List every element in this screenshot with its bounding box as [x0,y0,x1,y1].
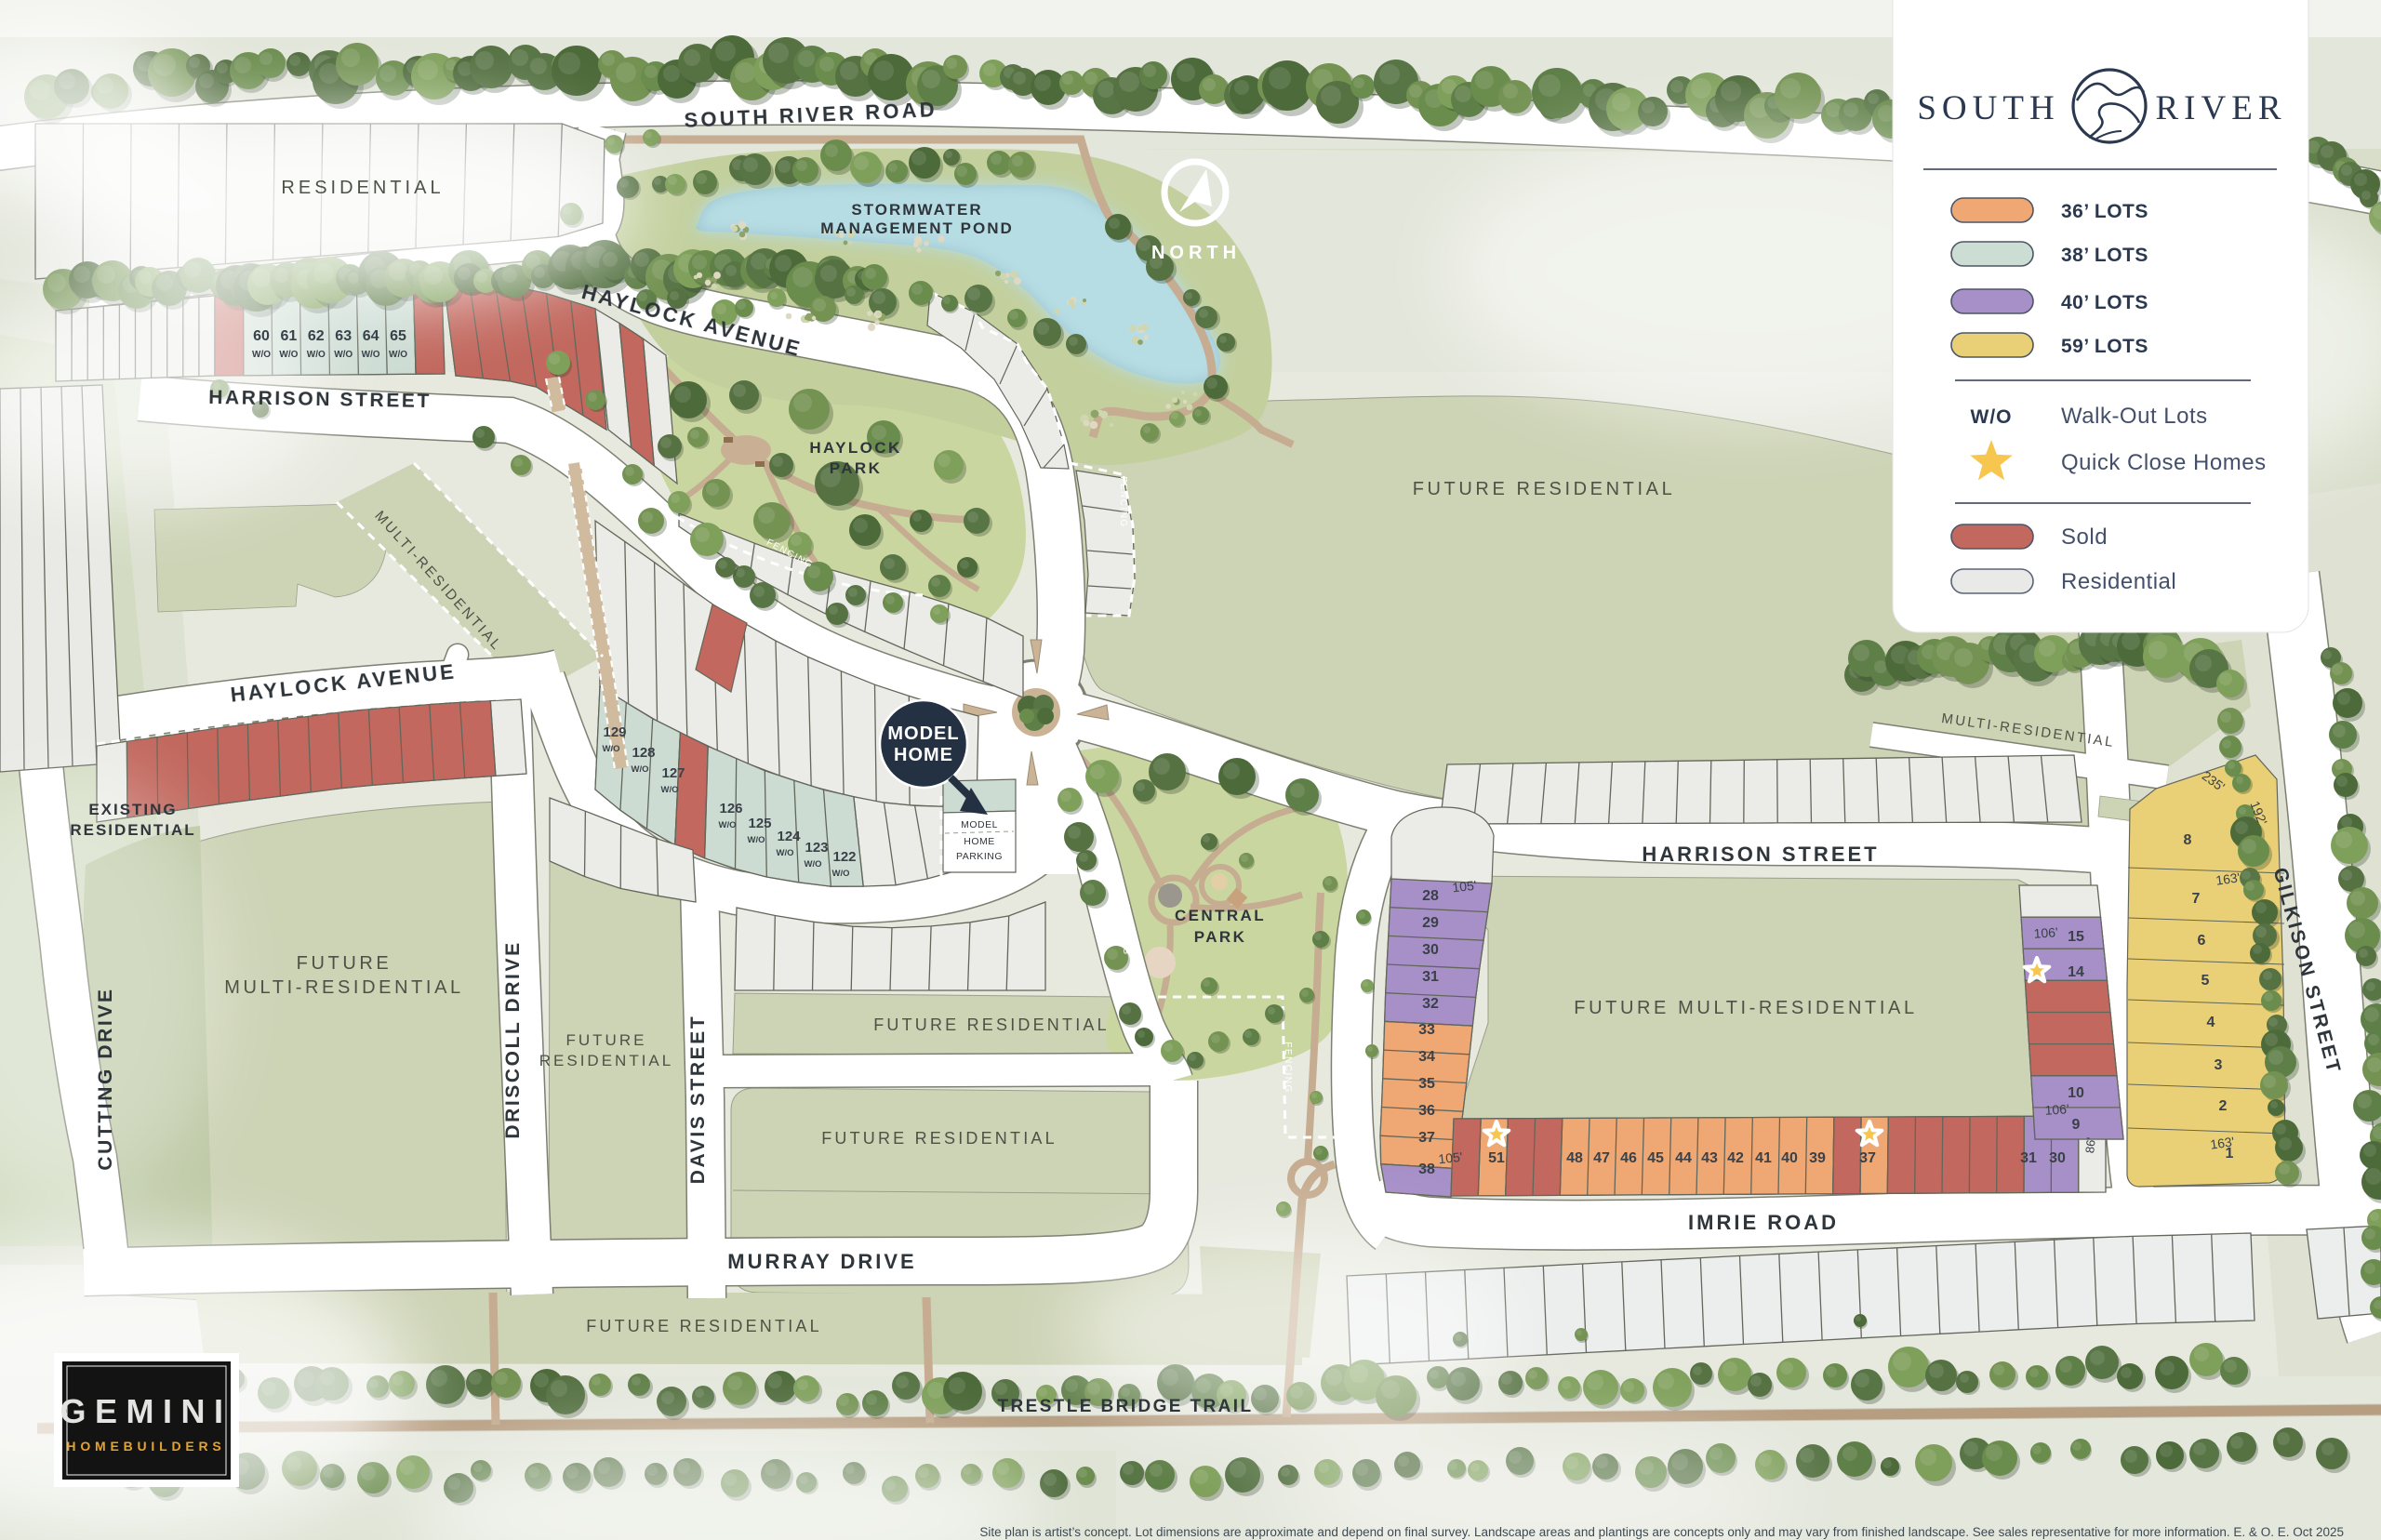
svg-text:MANAGEMENT POND: MANAGEMENT POND [820,219,1014,237]
svg-text:SOUTH: SOUTH [1917,89,2059,127]
svg-text:4: 4 [2207,1015,2215,1030]
svg-text:FUTURE RESIDENTIAL: FUTURE RESIDENTIAL [1413,479,1676,499]
svg-text:126: 126 [719,801,742,816]
svg-text:64: 64 [363,328,379,344]
svg-text:FUTURE MULTI-RESIDENTIAL: FUTURE MULTI-RESIDENTIAL [1574,998,1917,1018]
svg-text:W/O: W/O [719,820,737,830]
svg-text:STORMWATER: STORMWATER [851,201,982,219]
svg-text:CUTTING DRIVE: CUTTING DRIVE [95,987,116,1170]
svg-text:2: 2 [2219,1098,2228,1114]
svg-text:105': 105' [1438,1149,1464,1167]
svg-text:W/O: W/O [334,350,352,360]
svg-text:6: 6 [2198,933,2206,949]
svg-text:HOME: HOME [964,836,995,847]
svg-text:29: 29 [1422,915,1439,931]
svg-text:W/O: W/O [362,350,380,360]
svg-text:CENTRAL: CENTRAL [1175,907,1266,924]
svg-text:FENCING: FENCING [1118,476,1128,528]
svg-text:Residential: Residential [2061,569,2176,594]
svg-text:GEMINI: GEMINI [60,1392,232,1430]
svg-text:W/O: W/O [832,869,850,879]
svg-text:62: 62 [308,328,325,344]
svg-text:EXISTING: EXISTING [88,801,177,818]
svg-text:38’ LOTS: 38’ LOTS [2061,245,2148,266]
svg-text:FUTURE RESIDENTIAL: FUTURE RESIDENTIAL [873,1016,1110,1034]
svg-text:FENCING: FENCING [1121,904,1131,956]
svg-text:FUTURE: FUTURE [566,1031,647,1049]
svg-text:Walk-Out Lots: Walk-Out Lots [2061,404,2208,429]
svg-text:Quick Close Homes: Quick Close Homes [2061,450,2267,475]
svg-text:FUTURE RESIDENTIAL: FUTURE RESIDENTIAL [821,1129,1057,1148]
svg-text:40’ LOTS: 40’ LOTS [2061,292,2148,313]
svg-text:125: 125 [748,816,771,831]
svg-text:123: 123 [805,840,828,856]
svg-text:W/O: W/O [748,835,765,845]
svg-text:37: 37 [1859,1150,1876,1166]
svg-text:43: 43 [1701,1150,1718,1166]
svg-text:31: 31 [1422,969,1439,985]
svg-text:FUTURE: FUTURE [297,953,392,974]
svg-text:FENCING: FENCING [1283,1042,1293,1094]
svg-text:46: 46 [1620,1150,1637,1166]
svg-text:60: 60 [253,328,270,344]
svg-text:30: 30 [1422,942,1439,958]
svg-text:48: 48 [1566,1150,1583,1166]
svg-text:34: 34 [1418,1049,1435,1065]
svg-text:Site plan is artist’s concept.: Site plan is artist’s concept. Lot dimen… [979,1525,2344,1539]
svg-text:RESIDENTIAL: RESIDENTIAL [539,1052,673,1069]
svg-text:PARKING: PARKING [956,851,1003,862]
svg-text:MODEL: MODEL [961,819,998,830]
svg-text:HARRISON STREET: HARRISON STREET [1642,843,1879,866]
svg-text:PARK: PARK [1194,928,1247,946]
svg-text:IMRIE ROAD: IMRIE ROAD [1688,1211,1839,1234]
svg-text:W/O: W/O [389,350,407,360]
svg-text:8: 8 [2184,832,2192,848]
svg-text:30: 30 [2049,1150,2066,1166]
svg-text:NORTH: NORTH [1151,243,1241,263]
svg-text:40: 40 [1781,1150,1798,1166]
svg-text:39: 39 [1809,1150,1826,1166]
svg-text:W/O: W/O [252,350,271,360]
svg-text:129: 129 [603,724,626,740]
svg-text:W/O: W/O [603,744,620,754]
svg-text:RESIDENTIAL: RESIDENTIAL [70,821,195,839]
svg-text:MULTI-RESIDENTIAL: MULTI-RESIDENTIAL [224,977,464,998]
svg-text:36: 36 [1418,1103,1435,1119]
svg-text:FUTURE RESIDENTIAL: FUTURE RESIDENTIAL [586,1317,822,1335]
svg-text:7: 7 [2192,891,2201,907]
svg-text:37: 37 [1418,1130,1435,1146]
svg-text:3: 3 [2215,1057,2223,1073]
svg-text:PARK: PARK [830,459,883,477]
svg-text:65: 65 [390,328,406,344]
svg-text:14: 14 [2068,964,2084,980]
svg-text:31: 31 [2020,1150,2037,1166]
svg-text:42: 42 [1727,1150,1744,1166]
svg-text:DRISCOLL DRIVE: DRISCOLL DRIVE [502,940,524,1138]
svg-text:106': 106' [2033,924,2058,941]
svg-text:RESIDENTIAL: RESIDENTIAL [281,178,444,198]
svg-text:105': 105' [1452,878,1478,896]
svg-text:W/O: W/O [1971,406,2013,428]
svg-text:63: 63 [335,328,352,344]
svg-text:122: 122 [832,849,856,865]
svg-text:Sold: Sold [2061,524,2108,550]
svg-text:MURRAY DRIVE: MURRAY DRIVE [727,1250,916,1273]
svg-text:36’ LOTS: 36’ LOTS [2061,201,2148,222]
svg-text:W/O: W/O [632,764,649,775]
svg-text:15: 15 [2068,929,2084,945]
svg-text:44: 44 [1675,1150,1692,1166]
svg-text:TRESTLE BRIDGE TRAIL: TRESTLE BRIDGE TRAIL [998,1397,1254,1416]
svg-text:128: 128 [632,745,655,761]
svg-text:HARRISON STREET: HARRISON STREET [208,387,432,412]
svg-text:33: 33 [1418,1022,1435,1038]
svg-text:41: 41 [1755,1150,1772,1166]
svg-text:HAYLOCK: HAYLOCK [809,439,901,457]
svg-text:W/O: W/O [279,350,298,360]
svg-text:38: 38 [1418,1162,1435,1177]
svg-text:MODEL: MODEL [887,724,959,744]
svg-text:HOMEBUILDERS: HOMEBUILDERS [66,1439,225,1454]
svg-text:W/O: W/O [805,859,822,870]
svg-text:32: 32 [1422,996,1439,1012]
svg-text:9: 9 [2072,1117,2081,1133]
svg-text:28: 28 [1422,888,1439,904]
svg-text:61: 61 [281,328,298,344]
svg-text:35: 35 [1418,1076,1435,1092]
svg-text:HOME: HOME [894,745,953,765]
svg-text:DAVIS STREET: DAVIS STREET [687,1015,709,1185]
svg-text:124: 124 [777,829,801,844]
svg-text:W/O: W/O [661,785,679,795]
svg-text:10: 10 [2068,1085,2084,1101]
svg-text:86': 86' [2082,1136,2098,1153]
svg-text:127: 127 [661,765,685,781]
svg-text:W/O: W/O [307,350,326,360]
svg-text:51: 51 [1488,1150,1505,1166]
svg-text:106': 106' [2044,1101,2069,1118]
svg-text:47: 47 [1593,1150,1610,1166]
svg-text:W/O: W/O [777,848,794,858]
svg-text:59’ LOTS: 59’ LOTS [2061,336,2148,357]
svg-text:5: 5 [2201,973,2210,989]
svg-text:45: 45 [1647,1150,1664,1166]
svg-text:RIVER: RIVER [2156,89,2287,127]
